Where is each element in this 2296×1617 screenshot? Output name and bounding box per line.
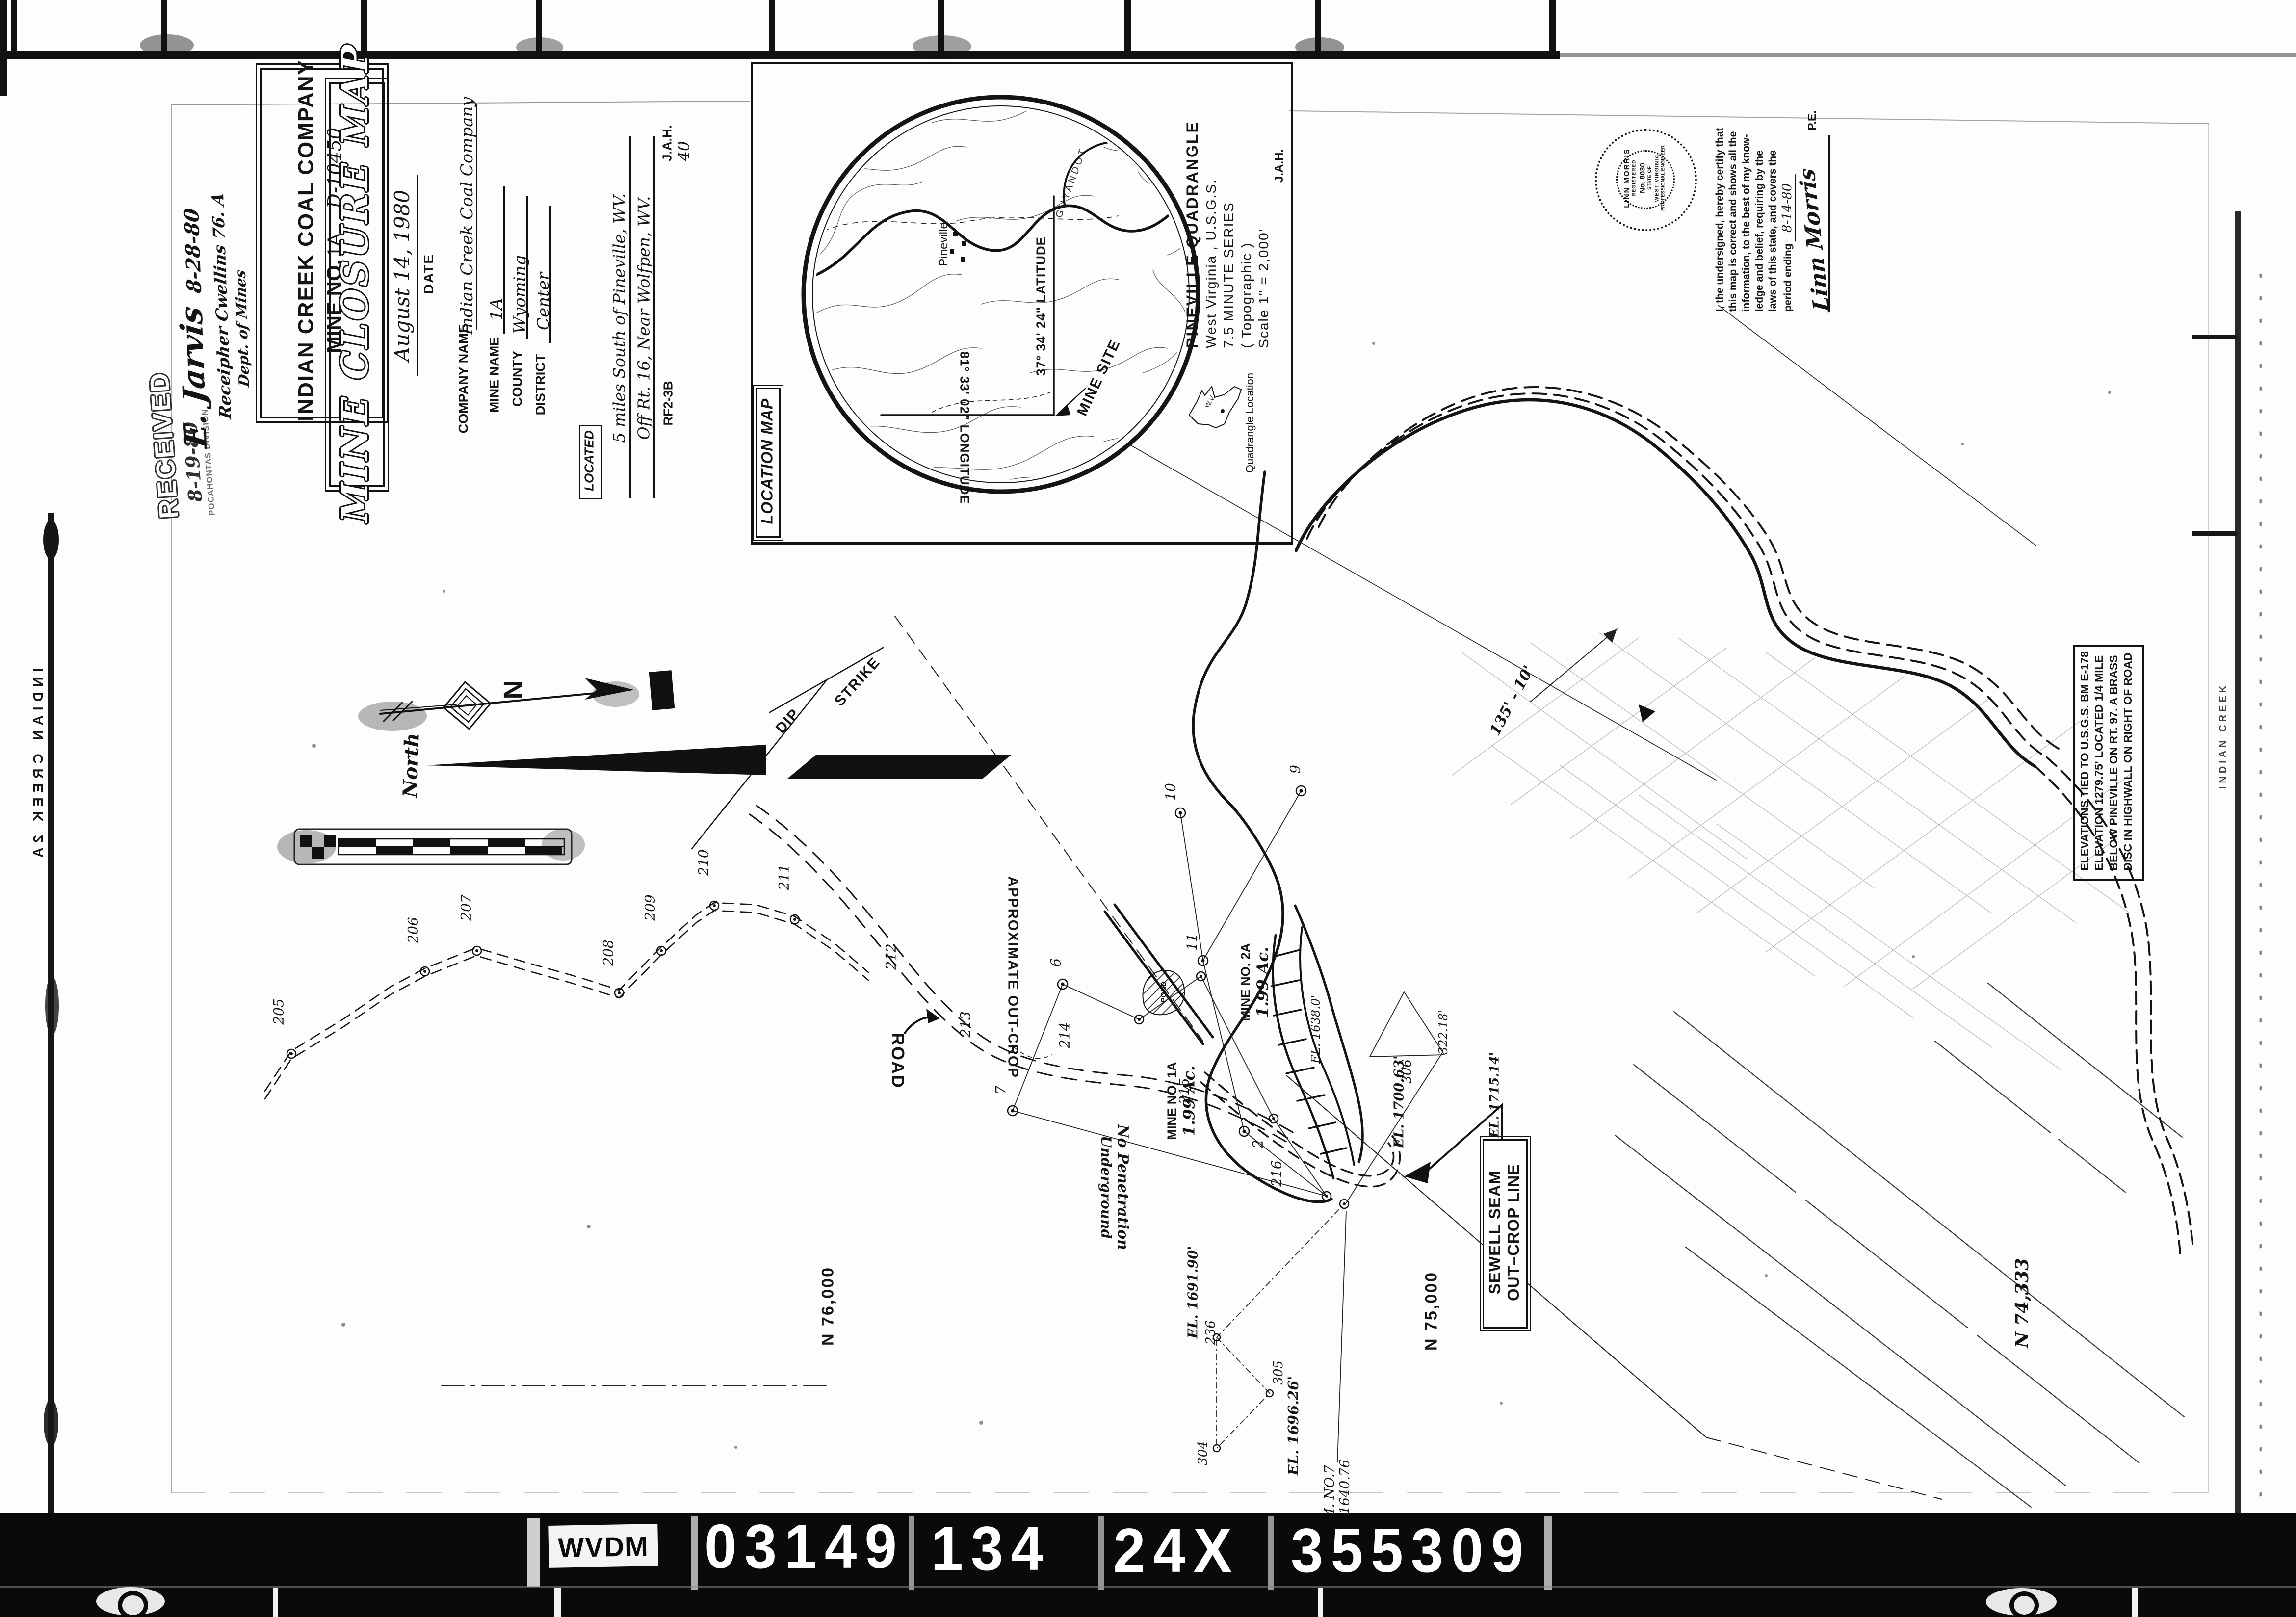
film-edge-label-left: INDIAN CREEK 2A xyxy=(30,668,46,862)
map-title: MINE CLOSURE MAP xyxy=(334,43,376,522)
handwritten-signatures: E. Jarvis 8-28-80 Receipher Cwellins 76.… xyxy=(169,192,255,448)
strip-streak xyxy=(273,1588,278,1617)
sheet-no: 40 xyxy=(675,141,693,161)
bench-lines xyxy=(1615,983,2184,1507)
seal-line: WEST VIRGINIA xyxy=(1654,145,1661,211)
station-label: 208 xyxy=(600,939,617,965)
dist-32218: 322.18' xyxy=(1436,1010,1450,1055)
quad-location-label: Quadrangle Location xyxy=(1244,373,1256,473)
north-label: North xyxy=(398,732,424,798)
quad-name: PINEVILLE QUADRANGLE xyxy=(1182,121,1202,348)
north-letter: N xyxy=(498,680,528,700)
station-label: 214 xyxy=(1057,1022,1073,1048)
film-reel-blob xyxy=(1986,1588,2057,1616)
cert-line: this map is correct and shows all the xyxy=(1727,128,1740,312)
quad-scale: Scale 1" = 2,000' xyxy=(1255,121,1273,348)
strip-divider xyxy=(0,1586,2296,1588)
field-rule xyxy=(503,186,505,334)
located-rule xyxy=(629,136,631,498)
no-penetration-line: Underground xyxy=(1098,1124,1114,1250)
quad-state: West Virginia , U.S.G.S. xyxy=(1202,121,1220,348)
film-right-edge xyxy=(2192,211,2261,1515)
cert-line: information, to the best of my know- xyxy=(1740,128,1753,312)
projected-workings-grid xyxy=(1452,633,2129,1069)
field-value-company: Indian Creek Coal Company xyxy=(457,97,477,335)
film-left-edge xyxy=(43,513,59,1516)
approximate-outcrop-line xyxy=(265,903,868,1099)
station-label: 2 xyxy=(1250,1140,1266,1148)
film-edge-label-right: INDIAN CREEK xyxy=(2218,683,2229,789)
town-label: Pineville xyxy=(937,222,951,266)
station-label: 215 xyxy=(1176,1078,1193,1104)
pond-label: POND xyxy=(1160,981,1168,1002)
strip-gap xyxy=(1544,1516,1552,1590)
seal-line: REGISTERED xyxy=(1632,145,1638,211)
sewell-line1: SEWELL SEAM xyxy=(1486,1164,1504,1301)
northing-75000: N 75,000 xyxy=(1422,1271,1441,1351)
strip-number-2: 134 xyxy=(931,1513,1051,1585)
field-label-mine: MINE NAME xyxy=(487,337,502,413)
field-rule xyxy=(476,104,477,330)
station-label: 205 xyxy=(271,998,287,1024)
field-label-district: DISTRICT xyxy=(533,354,548,416)
reel-code: WVDM xyxy=(558,1530,649,1564)
strip-number-1: 03149 xyxy=(704,1511,905,1583)
elevation-note-line: ELEVATION 1279.75' LOCATED 1/4 MILE xyxy=(2092,651,2107,870)
quad-series: 7.5 MINUTE SERIES xyxy=(1220,121,1238,348)
mine-2a-name: MINE NO. 2A xyxy=(1238,943,1253,1021)
station-label: 207 xyxy=(458,894,474,920)
station-label: 213 xyxy=(958,1011,974,1037)
located-label: LOCATED xyxy=(582,430,597,491)
certification-block: I, the undersigned, hereby certify that … xyxy=(1714,128,1830,312)
elev-169190: EL. 1691.90' xyxy=(1186,1246,1201,1339)
location-map-label: LOCATION MAP xyxy=(758,398,777,524)
strike-dip-symbol xyxy=(426,648,1012,849)
strip-gap xyxy=(909,1516,914,1590)
cert-line: ledge and belief, requiring by the xyxy=(1753,128,1767,312)
road-lines xyxy=(750,806,1296,1144)
strip-gap xyxy=(1268,1516,1274,1590)
cert-signature: Linn Morris xyxy=(1793,167,1836,312)
road-label: ROAD xyxy=(887,1033,908,1089)
microfilm-scan: INDIAN CREEK COAL COMPANY MINE NO. 1A D-… xyxy=(0,0,2296,1617)
streams xyxy=(1193,472,1362,1202)
sewell-line2: OUT–CROP LINE xyxy=(1504,1164,1523,1301)
strip-number-3: 24X xyxy=(1113,1515,1240,1587)
film-reel-blob xyxy=(96,1587,165,1616)
seal-name: LINN MORRIS xyxy=(1622,145,1632,211)
station-label: 304 xyxy=(1196,1441,1210,1465)
strip-streak xyxy=(2132,1588,2138,1617)
date-field: August 14, 1980 xyxy=(390,175,418,376)
elevation-note-line: BELOW PINEVILLE ON RT. 97. A BRASS xyxy=(2107,651,2121,870)
film-label-strip: WVDM 03149 134 24X 355309 xyxy=(0,1513,2296,1617)
longitude-label: 81° 33' 02" LONGITUDE xyxy=(957,351,972,504)
scale-bar xyxy=(277,829,585,864)
quad-topo: ( Topographic ) xyxy=(1237,121,1255,348)
survey-traverse xyxy=(1013,791,1444,1462)
station-label: 211 xyxy=(776,864,792,890)
field-label-county: COUNTY xyxy=(510,351,525,407)
elev-1638: EL. 1638.0' xyxy=(1309,995,1323,1063)
form-no: RF2-3B xyxy=(661,381,676,425)
reel-hub-ring xyxy=(118,1591,148,1617)
sewell-label: SEWELL SEAM OUT–CROP LINE xyxy=(1486,1164,1523,1301)
road-arrow xyxy=(905,1009,940,1033)
strip-streak xyxy=(1318,1588,1323,1617)
located-line1: 5 miles South of Pineville, WV. xyxy=(610,193,629,443)
station-label: 210 xyxy=(696,849,712,875)
station-label: 10 xyxy=(1163,783,1179,801)
no-penetration-label: No Penetration Underground xyxy=(1098,1124,1131,1250)
mine-2a-acres: 1.99 Ac. xyxy=(1253,943,1272,1021)
signature-1: E. Jarvis xyxy=(173,305,214,449)
approx-outcrop-label: APPROXIMATE OUT-CROP xyxy=(1005,876,1021,1078)
located-rule xyxy=(653,136,655,498)
elevation-note-line: DISC IN HIGHWALL ON RIGHT OF ROAD xyxy=(2121,651,2135,870)
strip-number-4: 355309 xyxy=(1291,1515,1531,1587)
date-value: August 14, 1980 xyxy=(390,175,418,376)
cert-line: laws of this state, and covers the xyxy=(1767,128,1780,312)
sewell-outcrop-arc xyxy=(1296,387,2193,1254)
northing-76000: N 76,000 xyxy=(819,1266,838,1346)
station-label: 7 xyxy=(993,1086,1009,1095)
field-label-company: COMPANY NAME xyxy=(456,324,471,434)
company-name: INDIAN CREEK COAL COMPANY xyxy=(294,59,318,421)
elevation-note: ELEVATIONS TIED TO U.S.G.S. BM E-178 ELE… xyxy=(2078,651,2136,870)
station-label: 212 xyxy=(883,943,899,969)
seal-number: No. 8030 xyxy=(1638,145,1647,211)
strip-gap xyxy=(527,1518,540,1587)
mine-2a-label: MINE NO. 2A 1.99 Ac. xyxy=(1238,943,1272,1021)
no-penetration-line: No Penetration xyxy=(1114,1124,1131,1250)
north-arrow xyxy=(358,670,675,731)
seal-line: STATE OF xyxy=(1647,145,1654,211)
pe-seal-text: LINN MORRIS REGISTERED No. 8030 STATE OF… xyxy=(1622,145,1667,211)
field-rule xyxy=(549,206,551,343)
cert-line: period ending xyxy=(1782,243,1794,312)
located-line2: Off Rt. 16, Near Wolfpen, WV. xyxy=(634,196,653,440)
elev-171514: EL. 1715.14' xyxy=(1487,1052,1502,1138)
strip-gap xyxy=(1098,1516,1104,1590)
drafter-initials: J.A.H. xyxy=(660,125,675,161)
station-label: 9 xyxy=(1287,765,1304,774)
station-label: 209 xyxy=(642,894,658,920)
elevation-note-line: ELEVATIONS TIED TO U.S.G.S. BM E-178 xyxy=(2078,651,2092,870)
station-label: 206 xyxy=(405,917,421,943)
reel-code-box: WVDM xyxy=(548,1524,658,1568)
elev-169626: EL. 1696.26' xyxy=(1285,1376,1302,1476)
strip-gap xyxy=(691,1516,698,1590)
latitude-label: 37° 34' 24" LATITUDE xyxy=(1034,236,1049,376)
date-label: DATE xyxy=(421,254,437,294)
signature-1-date: 8-28-80 xyxy=(180,207,206,294)
cert-period-date: 8-14-80 xyxy=(1780,175,1796,241)
strip-streak xyxy=(554,1588,561,1617)
portal-outcrop-hook xyxy=(1201,1072,1400,1187)
cert-pe: P.E. xyxy=(1805,110,1819,130)
station-label: 306 xyxy=(1400,1059,1414,1084)
station-label: 305 xyxy=(1271,1360,1286,1385)
quadrangle-caption: PINEVILLE QUADRANGLE West Virginia , U.S… xyxy=(1182,121,1273,348)
station-label: 236 xyxy=(1203,1320,1218,1345)
station-label: 216 xyxy=(1269,1160,1285,1186)
reel-hub-ring xyxy=(2009,1591,2039,1617)
field-rule xyxy=(526,196,528,339)
cert-line: I, the undersigned, hereby certify that xyxy=(1714,128,1727,312)
grid-arrows xyxy=(1531,629,1655,722)
locmap-initials: J.A.H. xyxy=(1273,149,1286,183)
station-label: 11 xyxy=(1184,933,1200,951)
seal-line: PROFESSIONAL ENGINEER xyxy=(1661,145,1667,211)
northing-74333-handwritten: N 74,333 xyxy=(2012,1258,2033,1348)
station-label: 6 xyxy=(1048,958,1064,967)
